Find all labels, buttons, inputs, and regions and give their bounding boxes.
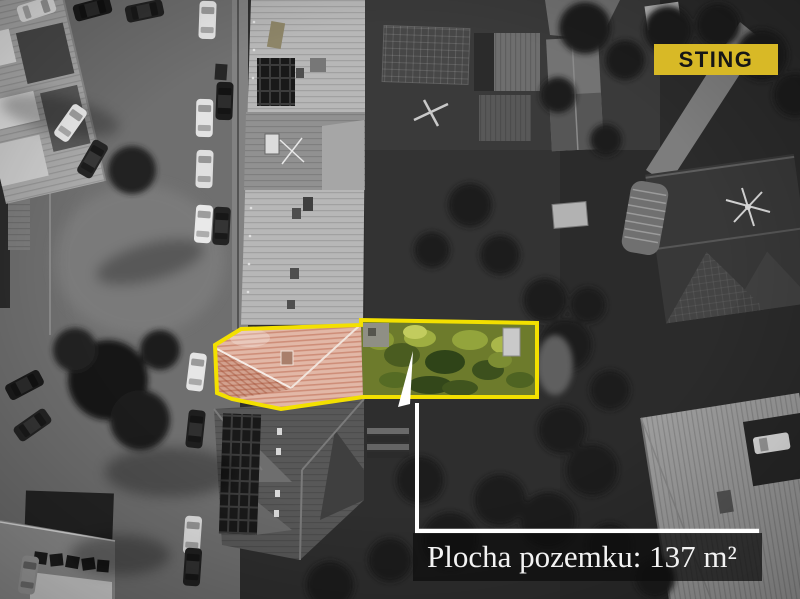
sting-logo-badge: STING bbox=[654, 44, 778, 75]
area-label: Plocha pozemku: 137 m² bbox=[413, 533, 762, 581]
aerial-scene bbox=[0, 0, 800, 599]
vignette bbox=[0, 0, 800, 599]
aerial-photo-stage: Plocha pozemku: 137 m² STING bbox=[0, 0, 800, 599]
